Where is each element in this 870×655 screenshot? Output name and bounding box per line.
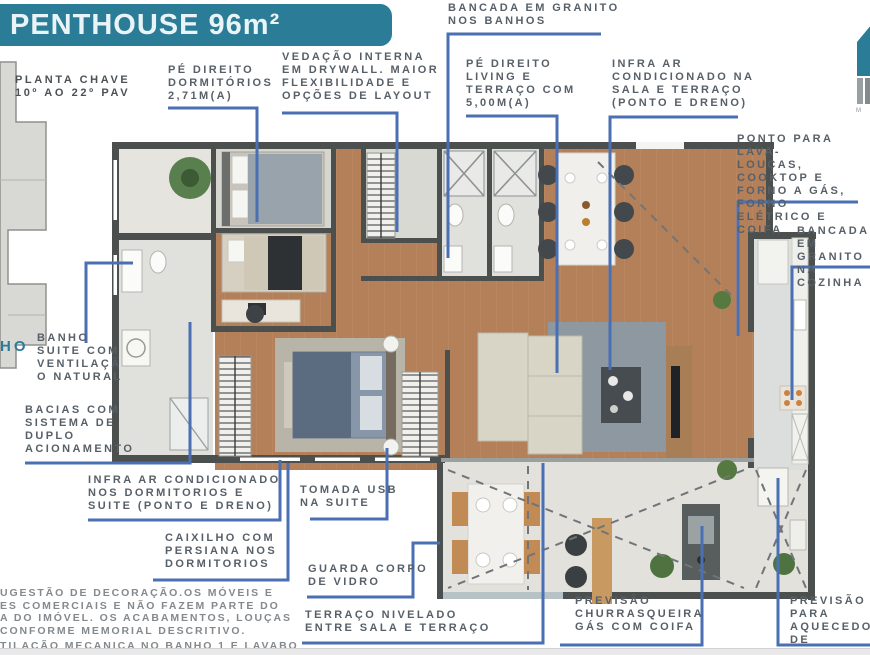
sliding-door-track xyxy=(441,458,754,462)
callout-bancada-cozinha: BANCADA EM GRANITO NA COZINHA xyxy=(797,225,870,290)
shower-icon xyxy=(444,151,484,196)
vanity-icon xyxy=(494,246,512,272)
brand-logo-caption: M xyxy=(856,108,862,114)
dorm2-desk-icon xyxy=(222,300,300,323)
callout-infra-ar-dormitorios: INFRA AR CONDICIONADO NOS DORMITORIOS E … xyxy=(88,474,281,513)
callout-ponto-lava-loucas: PONTO PARA LAVA- LOUÇAS, COOKTOP E FORNO… xyxy=(737,133,870,237)
vanity-icon xyxy=(122,250,142,292)
outdoor-chair-icon xyxy=(524,492,540,526)
outdoor-chair-icon xyxy=(452,492,468,526)
callout-aquecedor: PREVISÃO PARA AQUECEDOR DE PASSAGEM xyxy=(790,595,870,655)
callout-terraco-nivelado: TERRAÇO NIVELADO ENTRE SALA E TERRAÇO xyxy=(305,609,491,635)
key-plan-diagram xyxy=(0,62,46,368)
closet-rack-icon xyxy=(367,153,395,238)
callout-caixilho: CAIXILHO COM PERSIANA NOS DORMITORIOS xyxy=(165,532,277,571)
key-plan-label: PLANTA CHAVE 10º AO 22º PAV xyxy=(15,74,130,100)
outdoor-chair-icon xyxy=(452,540,468,574)
outdoor-table-icon xyxy=(468,484,524,584)
plant-icon xyxy=(650,554,674,578)
brand-logo-icon xyxy=(857,24,870,104)
page-title: PENTHOUSE 96m² xyxy=(10,9,280,42)
sofa-icon xyxy=(528,336,582,454)
callout-pe-direito-living: PÉ DIREITO LIVING E TERRAÇO COM 5,00M(A) xyxy=(466,58,576,110)
suite-bed-icon xyxy=(284,350,396,440)
disclaimer-text: UGESTÃO DE DECORAÇÃO.OS MÓVEIS E ES COME… xyxy=(0,587,292,637)
callout-tomada-usb: TOMADA USB NA SUITE xyxy=(300,484,398,510)
callout-churrasqueira: PREVISÃO CHURRASQUEIRA GÁS COM COIFA xyxy=(575,595,704,634)
callout-infra-ar-sala: INFRA AR CONDICIONADO NA SALA E TERRAÇO … xyxy=(612,58,754,110)
nightstand-icon xyxy=(383,336,399,352)
plant-icon xyxy=(169,157,211,199)
dining-set-icon xyxy=(538,153,634,265)
outdoor-chair-icon xyxy=(524,540,540,574)
dorm1-bed-icon xyxy=(222,152,324,226)
washer-icon xyxy=(122,330,150,366)
toilet-icon xyxy=(150,251,166,273)
entry-door-gap xyxy=(636,142,684,149)
sink-icon xyxy=(794,300,806,330)
stool-icon xyxy=(565,566,587,588)
coffee-table-icon xyxy=(601,367,641,423)
tank-icon xyxy=(790,520,806,550)
oven-icon xyxy=(792,414,808,460)
key-plan-partial-label: HO xyxy=(0,338,29,355)
callout-guarda-corpo: GUARDA CORPO DE VIDRO xyxy=(308,563,428,589)
callout-pe-direito-dormitorios: PÉ DIREITO DORMITÓRIOS 2,71M(A) xyxy=(168,64,273,103)
dorm2-bed-icon xyxy=(222,234,326,292)
nightstand-icon xyxy=(383,439,399,455)
title-banner: PENTHOUSE 96m² xyxy=(0,4,392,46)
callout-banho-suite: BANHO SUITE COM VENTILAÇÃ O NATURAL xyxy=(37,332,123,384)
fridge-icon xyxy=(758,240,788,284)
penthouse-floorplan-page: PENTHOUSE 96m² PLANTA CHAVE 10º AO 22º P… xyxy=(0,0,870,655)
callout-bacias: BACIAS COM SISTEMA DE DUPLO ACIONAMENTO xyxy=(25,404,134,456)
glass-guardrail xyxy=(443,592,563,599)
toilet-icon xyxy=(498,204,514,226)
callout-vedacao-drywall: VEDAÇÃO INTERNA EM DRYWALL. MAIOR FLEXIB… xyxy=(282,51,439,103)
tv-icon xyxy=(671,366,680,438)
shower-icon xyxy=(494,151,536,196)
chaise-icon xyxy=(478,333,528,441)
callout-bancada-banhos: BANCADA EM GRANITO NOS BANHOS xyxy=(448,2,620,28)
bottom-divider xyxy=(0,648,870,655)
